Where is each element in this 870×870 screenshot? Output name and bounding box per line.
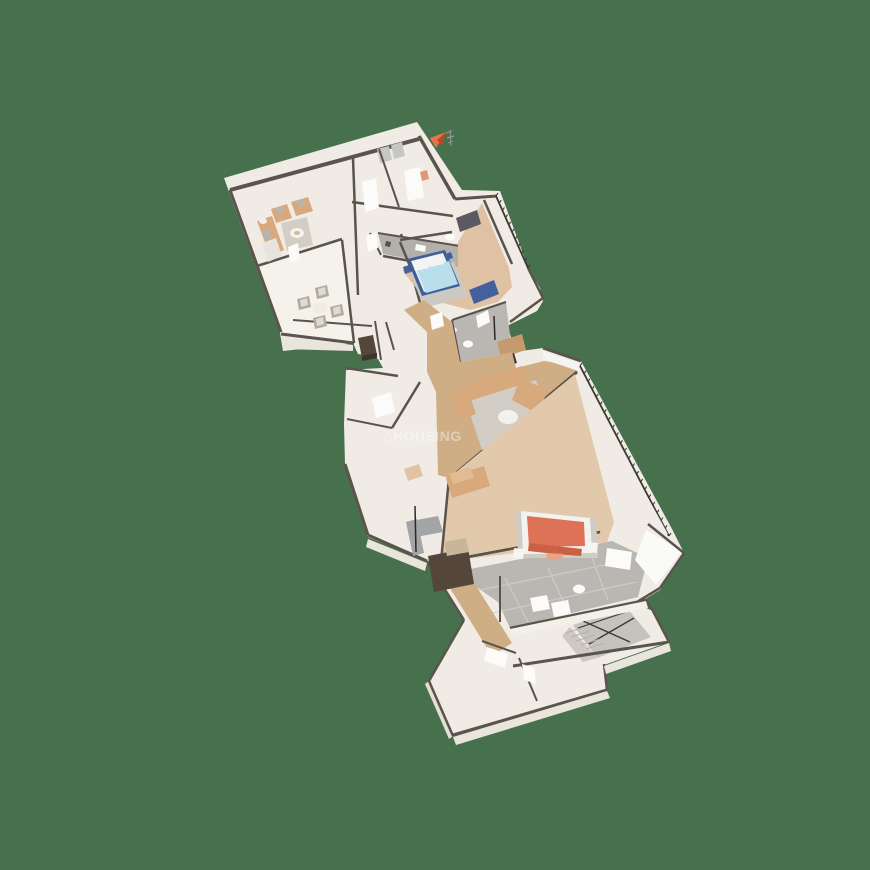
svg-text:⌂HOUSING: ⌂HOUSING: [384, 428, 462, 444]
